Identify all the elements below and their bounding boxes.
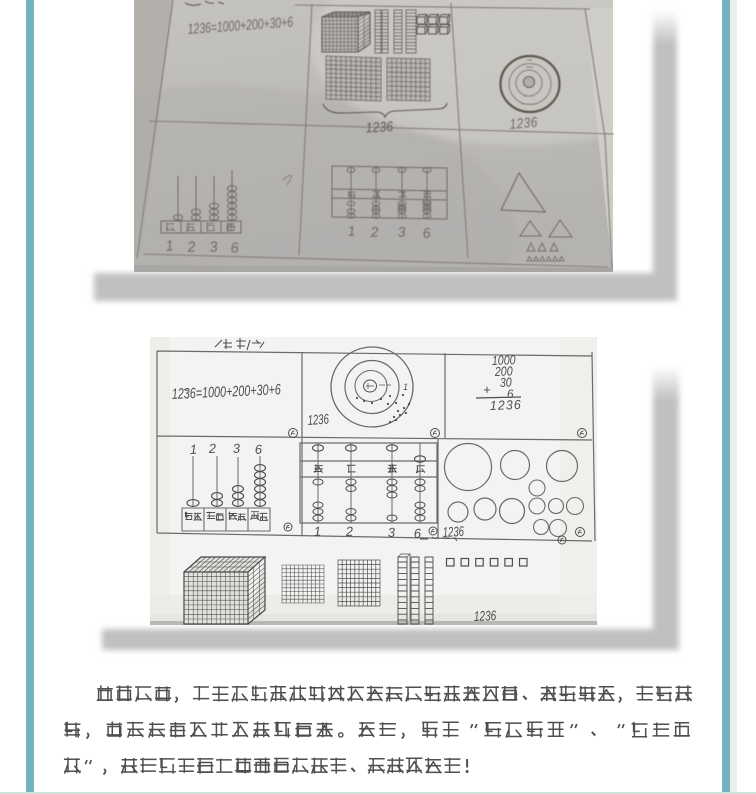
- svg-text:2: 2: [344, 524, 354, 539]
- svg-text:1236: 1236: [490, 398, 522, 413]
- svg-text:2: 2: [186, 239, 197, 256]
- svg-text:3: 3: [397, 223, 406, 240]
- svg-text:2: 2: [369, 223, 379, 240]
- svg-text:1: 1: [189, 442, 197, 457]
- svg-text:1: 1: [403, 382, 408, 392]
- svg-text:6: 6: [422, 224, 431, 241]
- svg-text:1: 1: [313, 524, 321, 539]
- svg-text:1236: 1236: [365, 118, 394, 136]
- svg-text:1: 1: [165, 238, 175, 255]
- svg-text:1236: 1236: [307, 411, 330, 429]
- svg-text:1236: 1236: [474, 608, 497, 625]
- svg-text:2: 2: [207, 441, 217, 456]
- svg-text:+: +: [483, 382, 491, 397]
- svg-text:3: 3: [209, 239, 219, 256]
- svg-text:1: 1: [347, 222, 356, 239]
- svg-text:1236: 1236: [509, 114, 539, 133]
